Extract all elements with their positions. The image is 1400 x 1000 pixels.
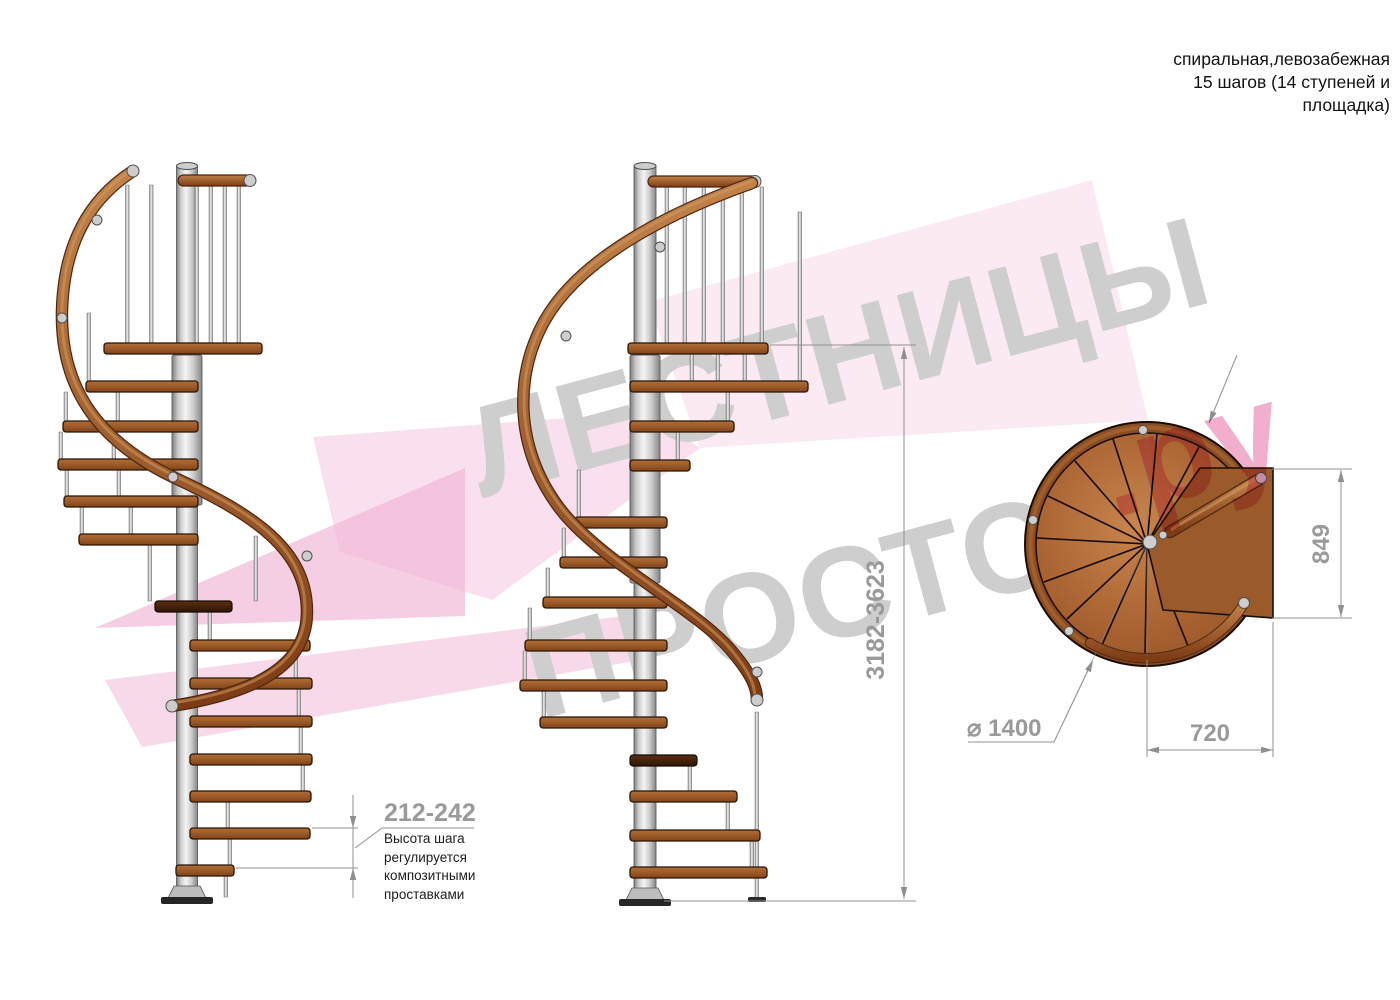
base-plate xyxy=(619,899,671,906)
side-view-1 xyxy=(57,163,312,905)
handrail-cap xyxy=(166,700,178,712)
pole-base-skirt xyxy=(168,886,206,898)
side-view-2 xyxy=(520,163,808,907)
page-title: спиральная,левозабежная 15 шагов (14 сту… xyxy=(1030,48,1390,117)
center-pole xyxy=(177,166,198,900)
handrail-cap xyxy=(751,694,763,706)
platform-step xyxy=(104,343,262,354)
dim-step-height: 212-242 xyxy=(384,799,476,827)
pole-base-skirt xyxy=(626,888,664,900)
dim-plan-width: 849 xyxy=(1308,524,1335,564)
step-height-note: Высота шага регулируется композитными пр… xyxy=(384,830,475,904)
pole-top-cap xyxy=(634,163,656,170)
base-plate xyxy=(161,897,213,904)
pole-top-cap xyxy=(177,163,198,170)
handrail-cap xyxy=(127,165,139,177)
platform-step xyxy=(628,343,768,354)
staircase-drawing-page: ЛЕСТНИЦЫ ПРОСТО xyxy=(0,0,1400,1000)
dim-total-height: 3182-3623 xyxy=(862,560,890,680)
rail-end-cap xyxy=(244,175,256,187)
top-rail xyxy=(178,175,252,186)
dim-plan-diameter: ⌀ 1400 xyxy=(967,715,1042,742)
dim-plan-depth: 720 xyxy=(1190,720,1230,747)
